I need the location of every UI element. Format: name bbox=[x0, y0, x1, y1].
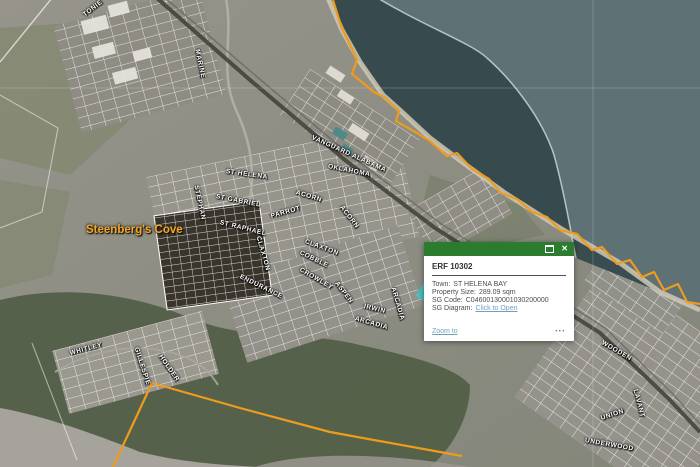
more-options-icon[interactable]: ••• bbox=[555, 329, 566, 335]
popup-title: ERF 10302 bbox=[432, 262, 566, 271]
field-town-label: Town: bbox=[432, 281, 450, 288]
field-sg-diagram: SG Diagram:Click to Open bbox=[432, 305, 566, 313]
place-label: Steenberg's Cove bbox=[86, 224, 183, 236]
popup-body: ERF 10302 Town:ST HELENA BAY Property Si… bbox=[424, 256, 574, 341]
field-sg-code-label: SG Code: bbox=[432, 297, 463, 304]
feature-popup: ✕ ERF 10302 Town:ST HELENA BAY Property … bbox=[424, 242, 574, 341]
field-town-value: ST HELENA BAY bbox=[453, 281, 507, 288]
field-property-size-label: Property Size: bbox=[432, 289, 476, 296]
field-town: Town:ST HELENA BAY bbox=[432, 281, 566, 289]
field-property-size-value: 289.09 sqm bbox=[479, 289, 516, 296]
popup-divider bbox=[432, 275, 566, 276]
field-sg-diagram-label: SG Diagram: bbox=[432, 305, 472, 312]
popup-footer: Zoom to ••• bbox=[432, 328, 566, 335]
zoom-to-link[interactable]: Zoom to bbox=[432, 328, 458, 335]
map-canvas[interactable]: ST HELENAST GABRIELST RAPHAELSTEPHANMARI… bbox=[0, 0, 700, 467]
close-icon[interactable]: ✕ bbox=[561, 245, 568, 253]
maximize-icon[interactable] bbox=[545, 245, 554, 253]
field-property-size: Property Size:289.09 sqm bbox=[432, 289, 566, 297]
field-sg-code: SG Code:C04600130001030200000 bbox=[432, 297, 566, 305]
field-sg-code-value: C04600130001030200000 bbox=[466, 297, 549, 304]
popup-header: ✕ bbox=[424, 242, 574, 256]
sg-diagram-link[interactable]: Click to Open bbox=[475, 305, 517, 312]
